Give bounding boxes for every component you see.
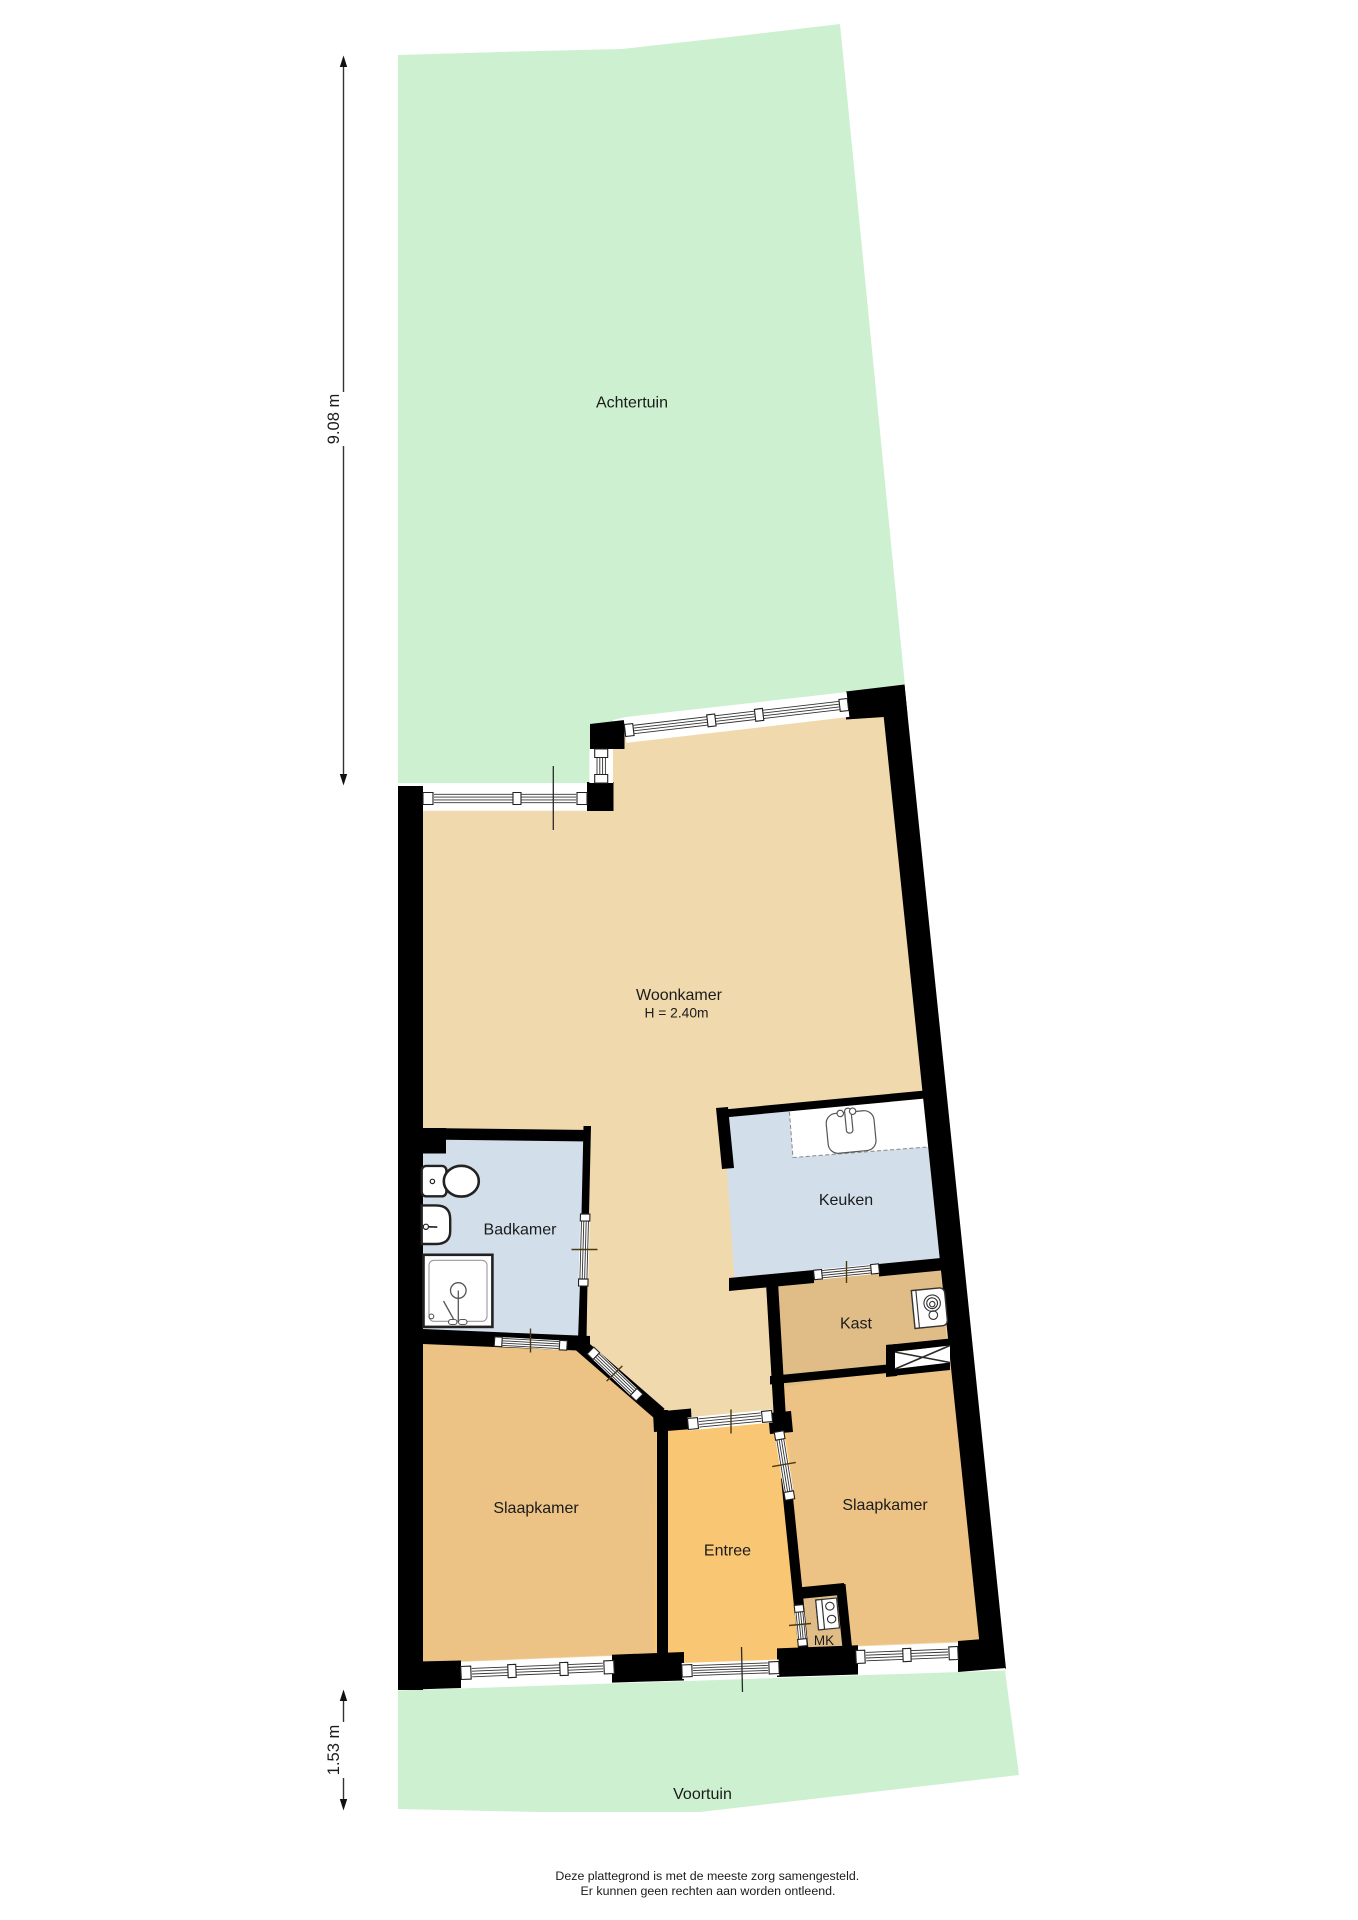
svg-text:Deze plattegrond is met de mee: Deze plattegrond is met de meeste zorg s… — [555, 1869, 859, 1883]
svg-text:Kast: Kast — [840, 1316, 873, 1333]
svg-text:Er kunnen geen rechten aan wor: Er kunnen geen rechten aan worden ontlee… — [581, 1884, 836, 1898]
svg-text:Entree: Entree — [704, 1543, 751, 1560]
svg-text:Voortuin: Voortuin — [673, 1786, 732, 1803]
svg-text:MK: MK — [814, 1633, 834, 1648]
svg-text:Achtertuin: Achtertuin — [596, 395, 668, 412]
svg-text:H = 2.40m: H = 2.40m — [644, 1006, 708, 1021]
svg-text:Keuken: Keuken — [819, 1192, 873, 1209]
svg-text:Slaapkamer: Slaapkamer — [842, 1497, 928, 1514]
svg-text:9.08 m: 9.08 m — [325, 394, 343, 444]
svg-text:Slaapkamer: Slaapkamer — [493, 1500, 579, 1517]
svg-text:Woonkamer: Woonkamer — [636, 987, 723, 1004]
svg-text:Badkamer: Badkamer — [484, 1222, 558, 1239]
svg-text:1.53 m: 1.53 m — [325, 1725, 343, 1775]
